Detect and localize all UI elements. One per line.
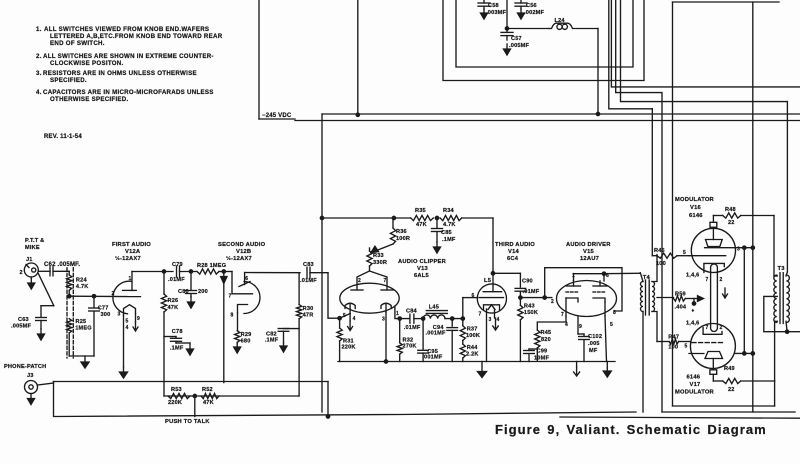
svg-text:6: 6	[245, 276, 248, 282]
svg-text:J1: J1	[26, 257, 33, 263]
svg-text:R28 1MEG: R28 1MEG	[197, 263, 226, 269]
svg-text:6146: 6146	[687, 375, 701, 381]
svg-text:½-12AX7: ½-12AX7	[115, 255, 141, 262]
svg-text:4.: 4.	[36, 89, 42, 96]
svg-text:PHONE-PATCH: PHONE-PATCH	[4, 364, 46, 370]
svg-text:.1MF: .1MF	[170, 346, 184, 352]
svg-text:220K: 220K	[342, 345, 356, 351]
svg-text:5: 5	[685, 344, 688, 350]
svg-text:.404: .404	[675, 305, 687, 311]
svg-text:C78: C78	[172, 329, 183, 335]
svg-text:6AL5: 6AL5	[414, 273, 430, 279]
svg-text:R24: R24	[76, 278, 88, 284]
svg-text:10MF: 10MF	[534, 356, 549, 362]
svg-text:LETTERED A,B,ETC.FROM KNOB END: LETTERED A,B,ETC.FROM KNOB END TOWARD RE…	[50, 33, 223, 40]
svg-text:47R: 47R	[303, 313, 314, 319]
svg-text:R36: R36	[396, 229, 407, 235]
svg-text:3: 3	[382, 317, 385, 323]
svg-text:V14: V14	[508, 249, 519, 255]
svg-text:.001MF: .001MF	[426, 331, 447, 337]
svg-text:2: 2	[112, 291, 115, 297]
svg-text:C99: C99	[537, 349, 548, 355]
svg-text:100: 100	[656, 261, 666, 267]
svg-text:CAPACITORS ARE IN MICRO-MICROF: CAPACITORS ARE IN MICRO-MICROFARADS UNLE…	[43, 89, 214, 96]
svg-text:200: 200	[198, 289, 208, 295]
svg-text:V12A: V12A	[125, 249, 141, 255]
svg-text:PUSH TO TALK: PUSH TO TALK	[165, 419, 210, 425]
svg-text:4: 4	[497, 317, 500, 323]
svg-text:2: 2	[358, 278, 361, 284]
svg-text:4: 4	[565, 322, 568, 328]
svg-text:47K: 47K	[416, 222, 427, 228]
svg-text:C85: C85	[441, 230, 452, 236]
svg-text:22: 22	[728, 220, 735, 226]
svg-text:.005MF: .005MF	[11, 324, 32, 330]
svg-text:ALL SWITCHES ARE SHOWN IN EXTR: ALL SWITCHES ARE SHOWN IN EXTREME COUNTE…	[43, 53, 214, 60]
svg-text:1: 1	[129, 276, 132, 282]
svg-text:V17: V17	[690, 382, 701, 388]
svg-text:.005: .005	[588, 341, 600, 347]
svg-text:.01MF: .01MF	[404, 325, 421, 331]
svg-text:6146: 6146	[689, 213, 703, 219]
svg-text:V13: V13	[417, 266, 428, 272]
svg-text:150K: 150K	[524, 310, 538, 316]
svg-text:R43: R43	[524, 304, 535, 310]
svg-text:8: 8	[613, 310, 616, 316]
svg-text:1MEG: 1MEG	[75, 326, 92, 332]
svg-text:AUDIO CLIPPER: AUDIO CLIPPER	[398, 259, 447, 265]
svg-text:.1MF: .1MF	[265, 338, 279, 344]
svg-text:RESISTORS ARE IN OHMS UNLESS O: RESISTORS ARE IN OHMS UNLESS OTHERWISE	[43, 70, 197, 77]
svg-text:P.T.T &: P.T.T &	[25, 238, 44, 244]
svg-text:330R: 330R	[373, 260, 387, 266]
svg-text:8: 8	[231, 313, 234, 319]
svg-text:7: 7	[706, 277, 709, 283]
svg-text:7: 7	[384, 278, 387, 284]
svg-text:6: 6	[472, 293, 475, 299]
svg-text:R25: R25	[76, 319, 87, 325]
svg-text:1,4,6: 1,4,6	[686, 273, 699, 279]
svg-text:R35: R35	[415, 208, 426, 214]
svg-text:7: 7	[479, 312, 482, 318]
svg-text:820: 820	[541, 337, 551, 343]
svg-text:ALL SWITCHES VIEWED FROM KNOB: ALL SWITCHES VIEWED FROM KNOB END.WAFERS	[44, 26, 209, 33]
svg-text:R53: R53	[171, 387, 182, 393]
svg-text:1: 1	[396, 311, 399, 317]
svg-text:C58: C58	[488, 3, 499, 9]
svg-text:MODULATOR: MODULATOR	[675, 390, 715, 396]
svg-text:100: 100	[668, 345, 678, 351]
svg-text:C56: C56	[526, 3, 537, 9]
svg-text:22: 22	[728, 387, 735, 393]
svg-text:4: 4	[353, 316, 356, 322]
svg-text:.005MF: .005MF	[509, 43, 530, 49]
svg-text:R26: R26	[168, 298, 179, 304]
svg-text:.003MF: .003MF	[486, 10, 507, 16]
svg-text:5: 5	[610, 322, 613, 328]
svg-text:5: 5	[343, 313, 346, 319]
svg-text:2.2K: 2.2K	[466, 352, 479, 358]
svg-text:FIRST AUDIO: FIRST AUDIO	[112, 242, 151, 248]
svg-text:9: 9	[137, 316, 140, 322]
svg-text:½-12AX7: ½-12AX7	[226, 255, 252, 262]
svg-text:47K: 47K	[203, 400, 214, 406]
svg-text:T3: T3	[778, 266, 786, 272]
svg-text:R45: R45	[541, 330, 552, 336]
svg-text:R44: R44	[467, 345, 479, 351]
svg-text:47K: 47K	[168, 305, 179, 311]
svg-text:MODULATOR: MODULATOR	[675, 197, 715, 203]
svg-text:6C4: 6C4	[507, 256, 519, 262]
svg-text:220K: 220K	[168, 400, 182, 406]
svg-text:C83: C83	[303, 262, 314, 268]
svg-text:C79: C79	[172, 262, 183, 268]
svg-text:4.7K: 4.7K	[76, 284, 89, 290]
svg-text:MF: MF	[589, 348, 598, 354]
svg-text:3: 3	[118, 312, 121, 318]
svg-text:C84: C84	[406, 309, 418, 315]
svg-text:OTHERWISE SPECIFIED.: OTHERWISE SPECIFIED.	[50, 96, 129, 103]
svg-text:.01MF: .01MF	[523, 289, 540, 295]
svg-text:2: 2	[20, 270, 23, 276]
svg-text:Figure 9, Valiant. Schematic D: Figure 9, Valiant. Schematic Diagram	[495, 422, 767, 437]
svg-text:.002MF: .002MF	[524, 10, 545, 16]
svg-text:.01MF: .01MF	[168, 277, 185, 283]
svg-text:R34: R34	[443, 208, 455, 214]
svg-text:3.: 3.	[36, 70, 42, 77]
svg-text:4.7K: 4.7K	[443, 222, 456, 228]
svg-text:R47: R47	[668, 335, 679, 341]
svg-text:5: 5	[126, 319, 129, 325]
svg-text:L45: L45	[429, 305, 439, 311]
svg-text:AUDIO DRIVER: AUDIO DRIVER	[566, 242, 611, 248]
svg-text:1.: 1.	[36, 26, 42, 33]
svg-text:C77: C77	[98, 306, 109, 312]
svg-text:7: 7	[706, 325, 709, 331]
svg-text:♦: ♦	[692, 308, 695, 314]
svg-text:3: 3	[489, 317, 492, 323]
svg-text:V16: V16	[690, 205, 701, 211]
svg-text:2: 2	[551, 299, 554, 305]
svg-text:REV. 11-1-54: REV. 11-1-54	[44, 134, 82, 140]
svg-text:−245 VDC: −245 VDC	[262, 113, 292, 119]
svg-text:7: 7	[561, 312, 564, 318]
svg-text:C57: C57	[511, 36, 522, 42]
svg-text:R33: R33	[373, 253, 384, 259]
svg-text:V15: V15	[583, 249, 594, 255]
svg-text:J3: J3	[27, 373, 34, 379]
svg-text:9: 9	[579, 324, 582, 330]
svg-text:100K: 100K	[466, 333, 480, 339]
svg-text:R48: R48	[725, 207, 736, 213]
svg-text:1,4,6: 1,4,6	[686, 321, 699, 327]
svg-text:12AU7: 12AU7	[580, 256, 599, 262]
svg-text:SECOND AUDIO: SECOND AUDIO	[218, 242, 266, 248]
svg-text:.1MF: .1MF	[442, 237, 456, 243]
svg-text:SPECIFIED.: SPECIFIED.	[50, 77, 87, 84]
svg-text:MIKE: MIKE	[25, 245, 40, 251]
svg-text:270K: 270K	[403, 344, 417, 350]
svg-text:680: 680	[241, 339, 251, 345]
svg-text:R49: R49	[724, 366, 735, 372]
svg-text:.001MF: .001MF	[422, 355, 443, 361]
svg-text:R30: R30	[303, 306, 314, 312]
svg-text:R52: R52	[202, 387, 213, 393]
svg-text:4: 4	[126, 325, 129, 331]
svg-text:7: 7	[229, 294, 232, 300]
svg-text:CLOCKWISE POSITON.: CLOCKWISE POSITON.	[50, 60, 124, 67]
svg-text:V12B: V12B	[236, 249, 251, 255]
svg-text:R29: R29	[241, 332, 252, 338]
svg-text:100R: 100R	[396, 236, 410, 242]
svg-text:L5: L5	[484, 278, 492, 284]
svg-text:C63: C63	[18, 317, 29, 323]
svg-text:C90: C90	[522, 279, 533, 285]
svg-text:2: 2	[720, 277, 723, 283]
svg-text:C102: C102	[588, 334, 602, 340]
svg-text:300: 300	[101, 312, 111, 318]
svg-text:THIRD AUDIO: THIRD AUDIO	[495, 242, 535, 248]
svg-text:END OF SWITCH.: END OF SWITCH.	[50, 40, 105, 47]
svg-text:R37: R37	[467, 327, 478, 333]
svg-text:2.: 2.	[36, 53, 42, 60]
svg-text:.01MF: .01MF	[300, 278, 317, 284]
